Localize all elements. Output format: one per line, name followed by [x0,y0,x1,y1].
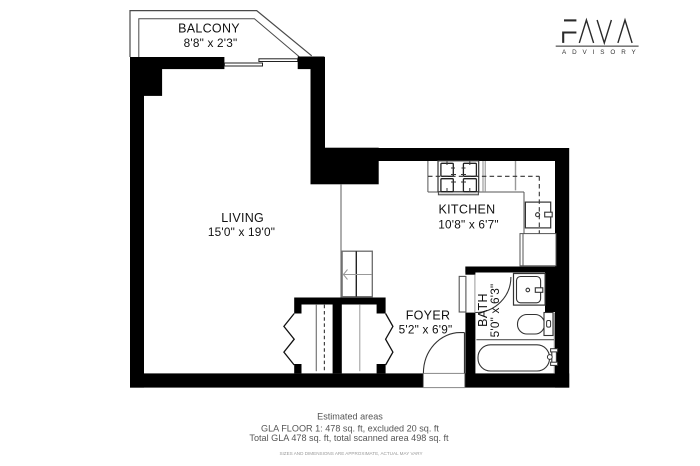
svg-text:Estimated areas: Estimated areas [317,412,383,422]
svg-text:GLA FLOOR 1: 478 sq. ft, exclu: GLA FLOOR 1: 478 sq. ft, excluded 20 sq.… [261,424,439,434]
svg-text:15'0" x 19'0": 15'0" x 19'0" [208,225,275,239]
svg-text:5'2" x 6'9": 5'2" x 6'9" [399,323,453,337]
svg-text:SIZES AND DIMENSIONS ARE APPRO: SIZES AND DIMENSIONS ARE APPROXIMATE, AC… [279,451,422,456]
svg-text:KITCHEN: KITCHEN [439,203,496,217]
svg-text:5'0" x 6'3": 5'0" x 6'3" [488,284,502,338]
svg-text:FOYER: FOYER [406,309,451,323]
svg-text:8'8" x 2'3": 8'8" x 2'3" [184,36,238,50]
svg-text:BALCONY: BALCONY [178,22,240,36]
svg-text:Total GLA 478 sq. ft, total sc: Total GLA 478 sq. ft, total scanned area… [249,433,449,443]
svg-text:ADVISORY: ADVISORY [562,49,642,56]
svg-text:LIVING: LIVING [221,211,264,225]
svg-text:10'8" x 6'7": 10'8" x 6'7" [438,218,499,232]
